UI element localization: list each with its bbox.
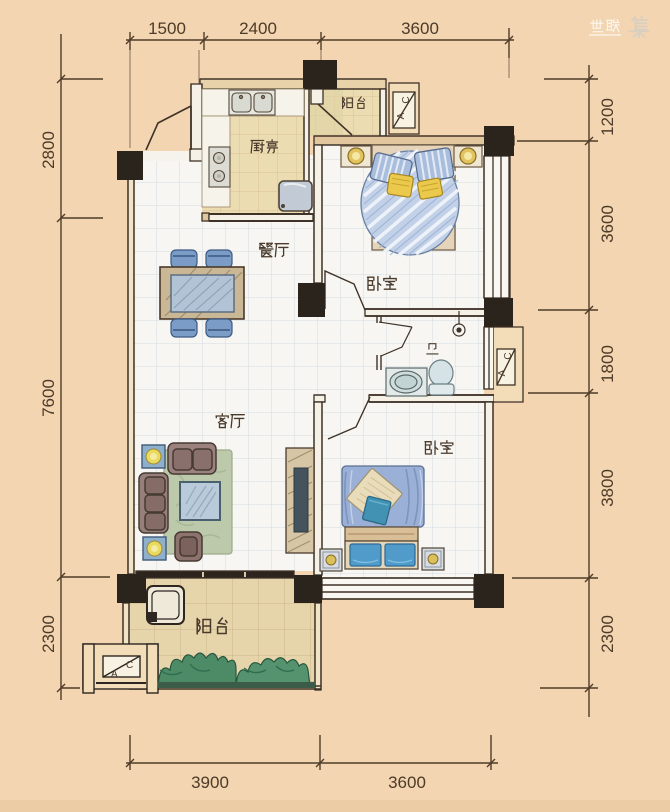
svg-text:1800: 1800 bbox=[598, 345, 617, 383]
svg-text:A: A bbox=[497, 369, 508, 376]
svg-text:3800: 3800 bbox=[598, 469, 617, 507]
svg-text:3900: 3900 bbox=[191, 773, 229, 792]
svg-text:3600: 3600 bbox=[388, 773, 426, 792]
svg-text:7600: 7600 bbox=[39, 379, 58, 417]
svg-text:2300: 2300 bbox=[598, 615, 617, 653]
svg-text:2300: 2300 bbox=[39, 615, 58, 653]
svg-text:1200: 1200 bbox=[598, 98, 617, 136]
svg-text:1500: 1500 bbox=[148, 19, 186, 38]
svg-text:C: C bbox=[126, 660, 133, 671]
svg-text:A: A bbox=[396, 112, 407, 119]
svg-text:C: C bbox=[503, 352, 514, 359]
svg-text:C: C bbox=[401, 96, 412, 103]
svg-text:2400: 2400 bbox=[239, 19, 277, 38]
svg-text:2800: 2800 bbox=[39, 131, 58, 169]
svg-text:3600: 3600 bbox=[598, 205, 617, 243]
svg-text:A: A bbox=[111, 669, 118, 680]
svg-text:3600: 3600 bbox=[401, 19, 439, 38]
